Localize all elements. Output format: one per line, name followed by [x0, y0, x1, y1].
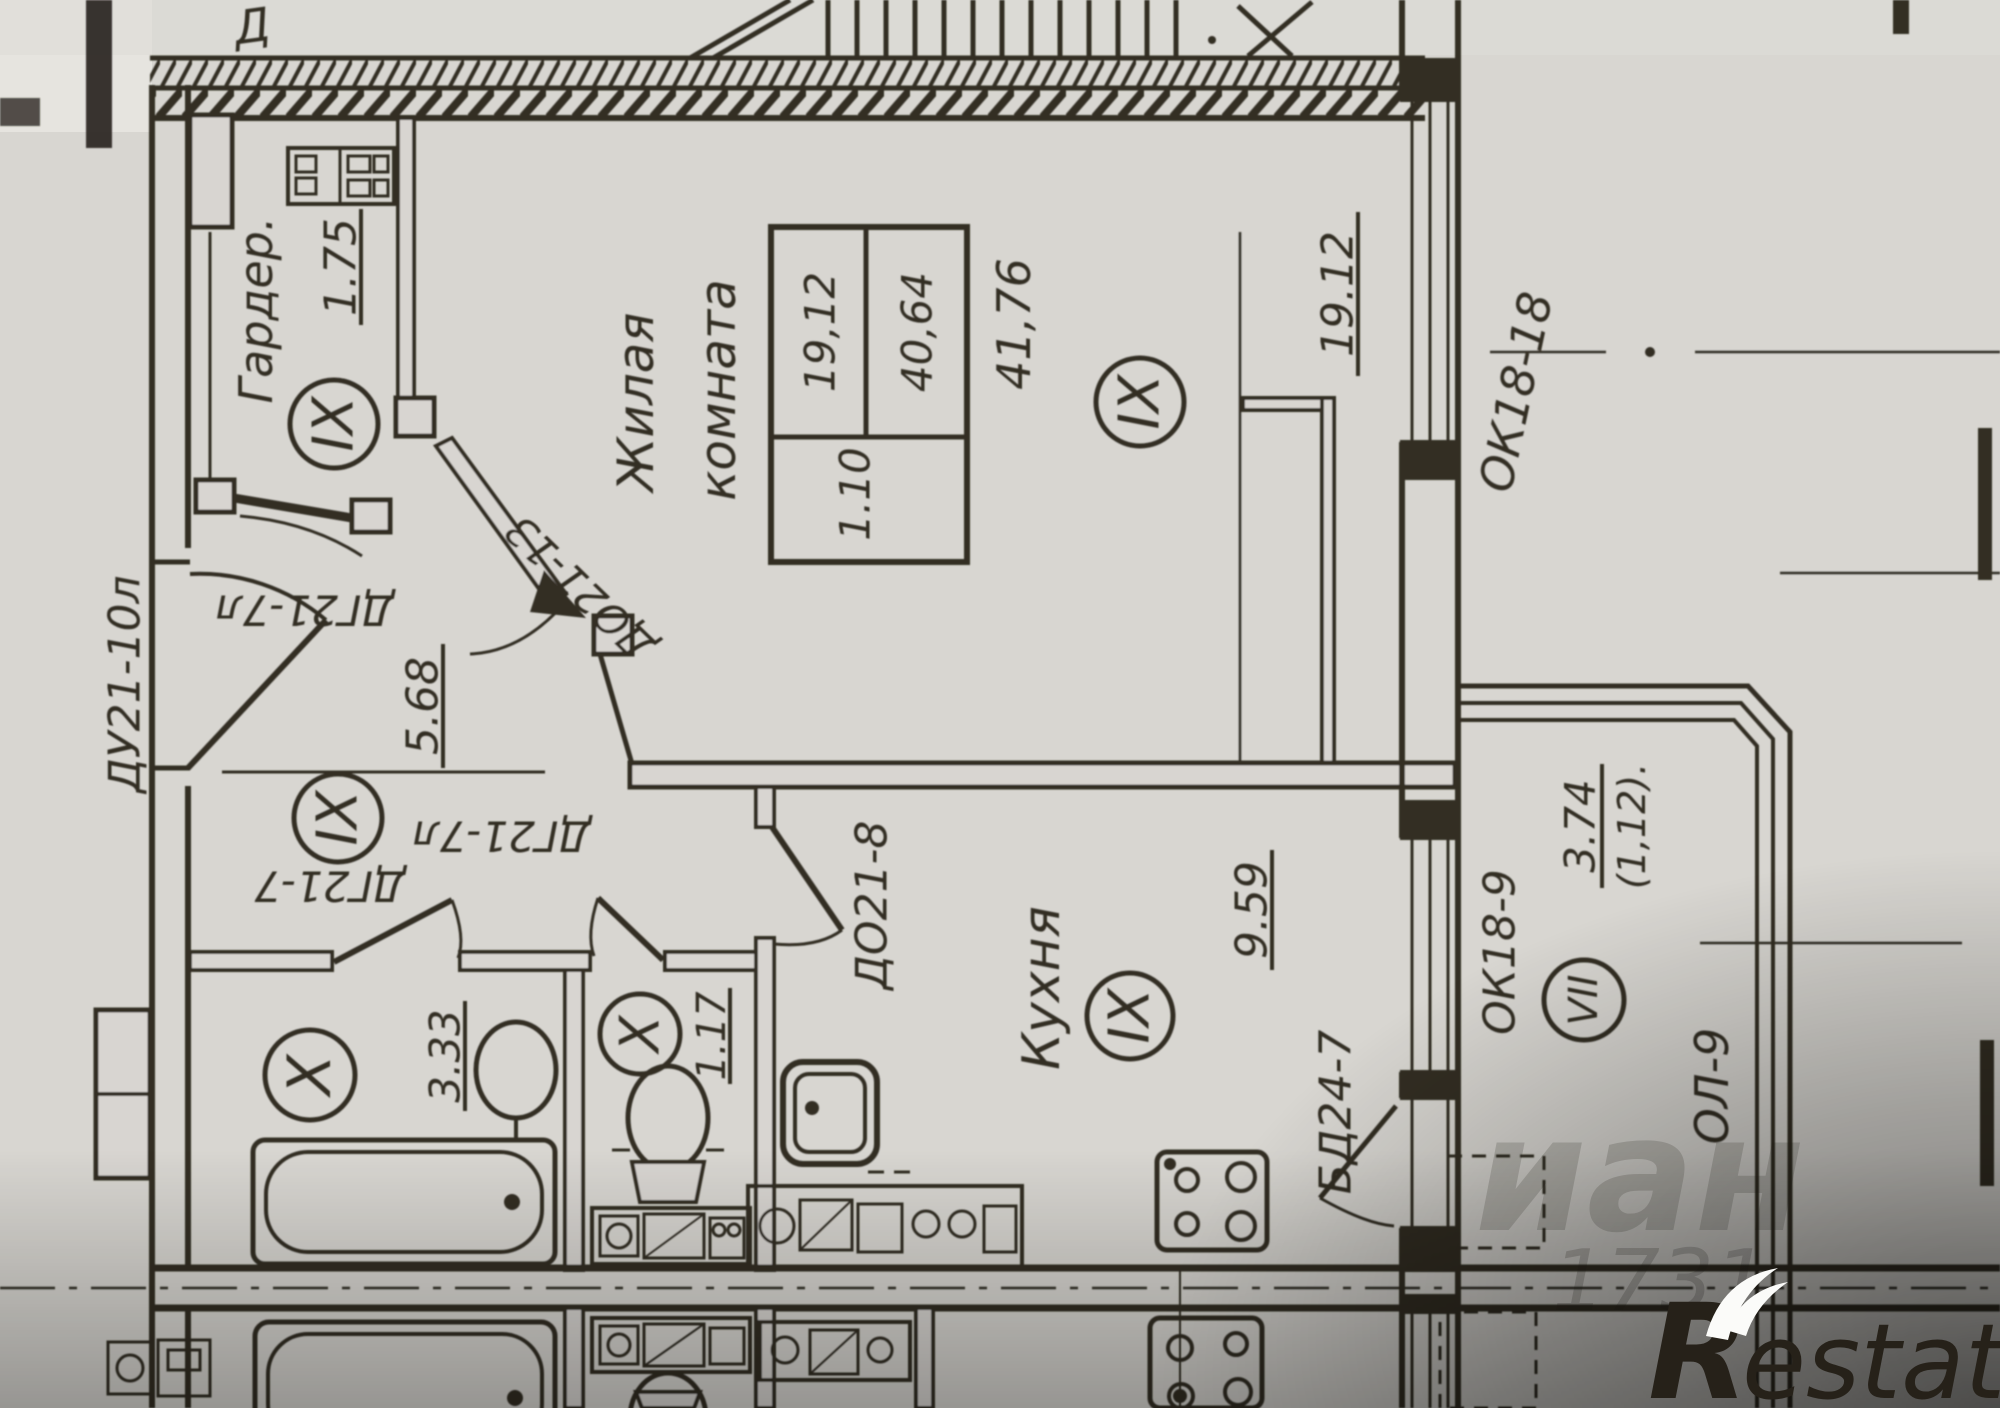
- svg-text:X: X: [275, 1053, 345, 1099]
- room-label-living-line1: Жилая: [607, 312, 665, 494]
- svg-text:ДО21-8: ДО21-8: [847, 821, 898, 992]
- svg-text:Кухня: Кухня: [1012, 906, 1072, 1070]
- area-wardrobe: 1.75: [316, 209, 367, 325]
- svg-text:ДУ21-10л: ДУ21-10л: [100, 575, 151, 794]
- svg-text:ДГ21-7: ДГ21-7: [254, 862, 408, 911]
- area-hall: 5.68: [398, 644, 449, 768]
- wall-pilaster-top: [190, 115, 232, 227]
- door-label-kitchen: ДО21-8: [847, 821, 898, 992]
- room-label-wardrobe: Гардер.: [229, 217, 283, 404]
- door-label-entry: ДУ21-10л: [100, 575, 151, 794]
- scanned-floor-plan: Д: [0, 0, 2000, 1408]
- svg-text:3.33: 3.33: [421, 1009, 470, 1103]
- room-label-kitchen: Кухня: [1012, 906, 1072, 1070]
- svg-text:IX: IX: [1108, 373, 1173, 430]
- door-label-wardrobe: ДГ21-7л: [216, 586, 396, 635]
- svg-text:IX: IX: [306, 789, 371, 846]
- svg-text:5.68: 5.68: [398, 657, 449, 755]
- table-cell-2: 40,64: [893, 272, 942, 392]
- table-cell-3: 1.10: [831, 447, 880, 541]
- svg-text:1.75: 1.75: [316, 218, 367, 316]
- wall-wardrobe-partition: [398, 118, 414, 400]
- svg-text:Жилая: Жилая: [607, 312, 665, 494]
- door-label-wc: ДГ21-7л: [413, 812, 593, 861]
- svg-text:Гардер.: Гардер.: [229, 217, 283, 404]
- area-wc: 1.17: [689, 988, 735, 1084]
- door-label-bathroom: ДГ21-7: [254, 862, 408, 911]
- hatched-wall-top: [150, 58, 1425, 118]
- svg-text:41,76: 41,76: [987, 258, 1041, 390]
- dimension-living: 19.12: [1313, 212, 1364, 376]
- svg-text:ДГ21-7л: ДГ21-7л: [413, 812, 593, 861]
- room-label-living-line2: комната: [689, 279, 747, 501]
- restate-logo-rest: estate: [1742, 1301, 2000, 1408]
- table-cell-1: 19,12: [796, 272, 845, 392]
- svg-text:ДГ21-7л: ДГ21-7л: [216, 586, 396, 635]
- wall-living-bottom: [630, 763, 1455, 787]
- svg-text:комната: комната: [689, 279, 747, 501]
- area-bathroom: 3.33: [421, 1001, 470, 1111]
- svg-text:X: X: [609, 1015, 672, 1056]
- wall-hall-bottom: [190, 952, 756, 970]
- area-total-living: 41,76: [987, 258, 1041, 390]
- svg-text:19.12: 19.12: [1313, 231, 1364, 357]
- svg-text:IX: IX: [302, 395, 367, 452]
